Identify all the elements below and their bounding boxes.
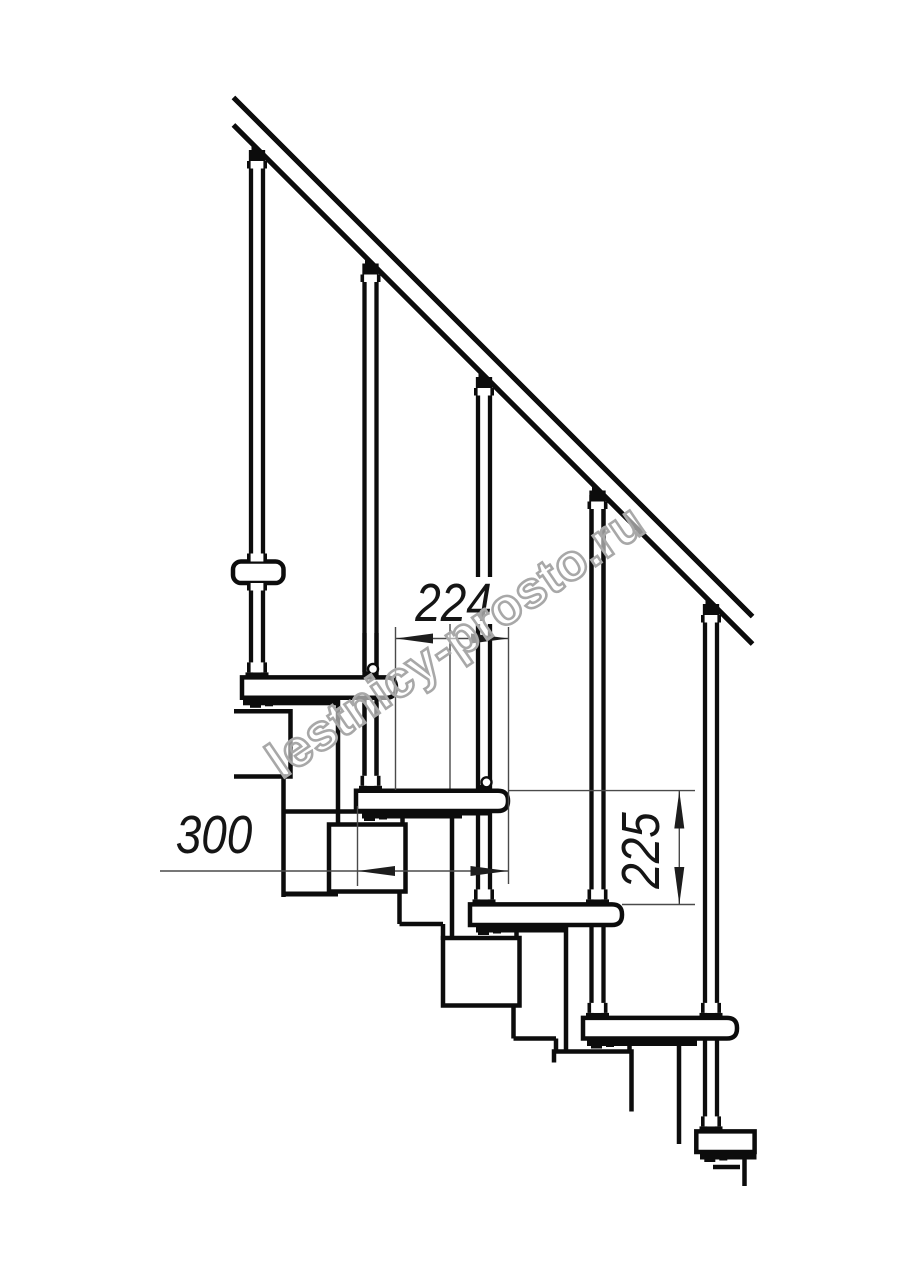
- svg-text:225: 225: [611, 812, 671, 890]
- svg-text:300: 300: [176, 805, 253, 865]
